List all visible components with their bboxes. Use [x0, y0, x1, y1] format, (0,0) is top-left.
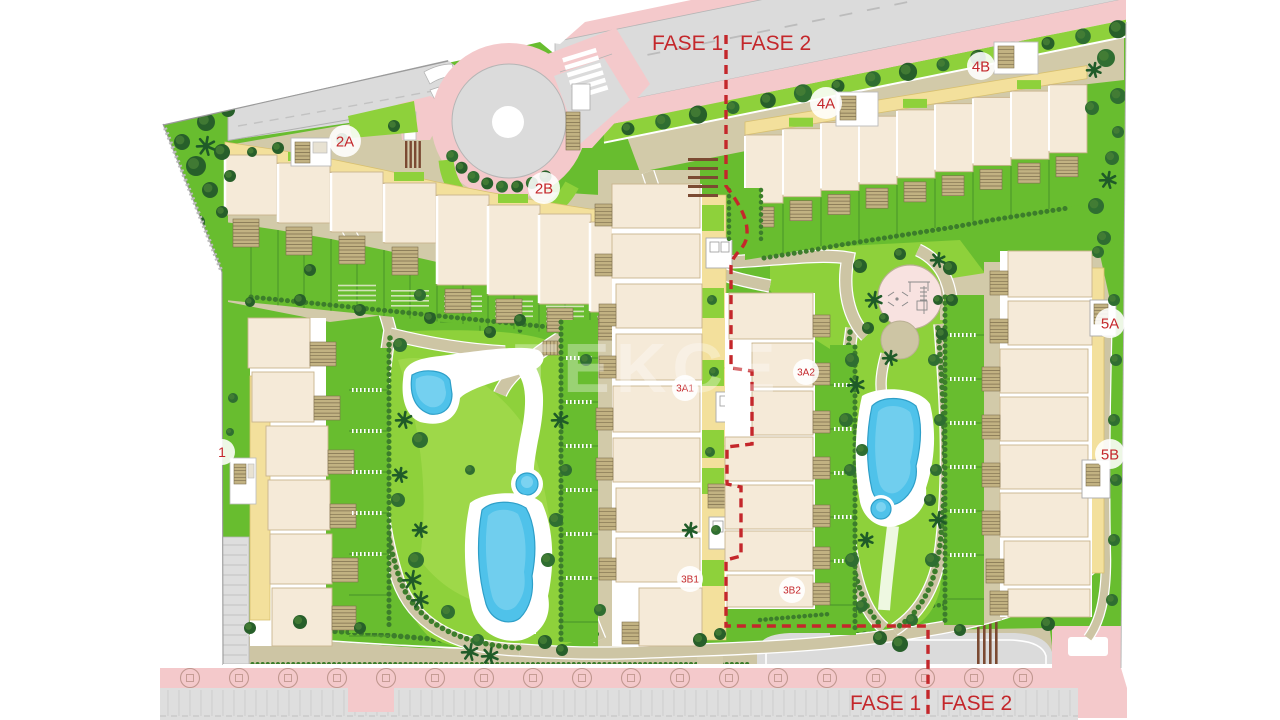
svg-text:FASE 1: FASE 1 [850, 692, 921, 715]
svg-text:3B1: 3B1 [681, 575, 699, 586]
svg-text:4B: 4B [972, 58, 990, 75]
svg-text:FASE 1: FASE 1 [652, 32, 723, 55]
svg-text:5B: 5B [1101, 446, 1119, 463]
svg-text:TEKCE: TEKCE [514, 329, 781, 407]
svg-text:FASE 2: FASE 2 [740, 32, 811, 55]
svg-text:3A2: 3A2 [797, 368, 815, 379]
svg-text:FASE 2: FASE 2 [941, 692, 1012, 715]
svg-text:2A: 2A [336, 133, 354, 150]
svg-text:2B: 2B [535, 180, 553, 197]
svg-text:1: 1 [218, 444, 226, 460]
svg-text:4A: 4A [817, 95, 835, 112]
svg-text:5A: 5A [1101, 315, 1119, 332]
svg-text:3B2: 3B2 [783, 586, 801, 597]
